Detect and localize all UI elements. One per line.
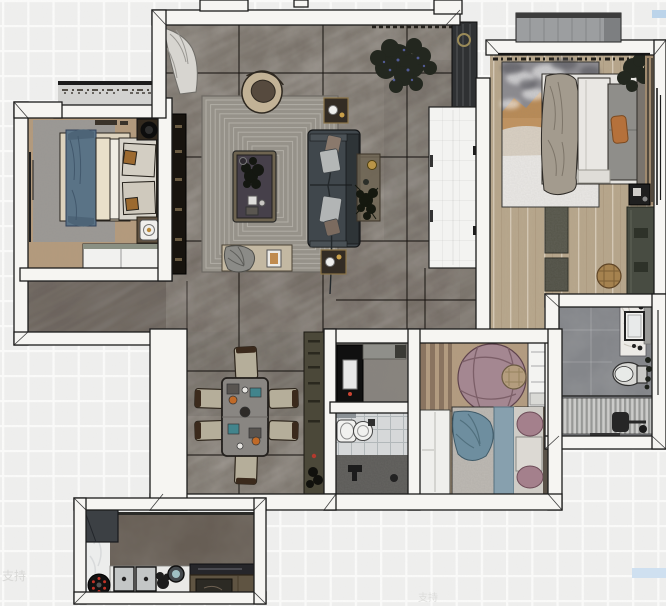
svg-text:支持: 支持 — [2, 568, 26, 583]
svg-text:支持: 支持 — [418, 591, 438, 604]
